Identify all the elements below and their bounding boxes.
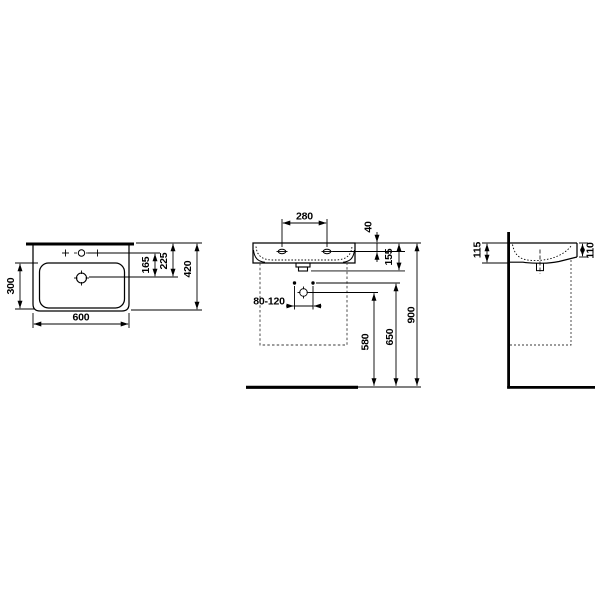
mounting-hole-right: [322, 249, 334, 253]
dim-label-225: 225: [158, 252, 170, 269]
siphon-connection-symbol: [298, 287, 310, 299]
bowl-hidden-profile-side: [513, 245, 572, 261]
wall-fixing-dot-right: [311, 281, 314, 284]
dimension-back-to-drain: 225: [89, 244, 178, 277]
dim-label-165: 165: [140, 256, 152, 273]
dim-label-110: 110: [584, 242, 596, 259]
dim-label-80-120: 80-120: [253, 296, 285, 308]
dimension-floor-to-drain: 580: [359, 293, 374, 385]
basin-body-outline: [33, 245, 129, 311]
dimension-body-height: 155: [383, 244, 399, 270]
mounting-hole-left: [277, 249, 288, 253]
dim-label-280: 280: [296, 211, 313, 223]
dim-label-900: 900: [405, 306, 417, 323]
dim-label-580: 580: [359, 333, 371, 350]
dimension-hole-spacing: 280: [282, 211, 327, 248]
dimension-height-at-wall: 115: [471, 241, 508, 263]
wall-fixing-dot-left: [293, 281, 296, 284]
shell-curve-left: [254, 250, 266, 262]
bowl-outline: [40, 263, 125, 308]
dim-label-420: 420: [182, 260, 194, 277]
side-view: 115 110: [471, 232, 596, 389]
bowl-hidden-profile: [256, 247, 352, 261]
washbasin-dimension-drawing: 300 600 165 225 420: [0, 0, 600, 600]
dimension-height-at-front: 110: [579, 242, 596, 259]
waste-outlet-pipe: [299, 267, 308, 271]
technical-drawing-canvas: 300 600 165 225 420: [0, 0, 600, 600]
alt-tap-hole-plus-left: [62, 250, 69, 257]
basin-side-underside: [509, 257, 577, 263]
dimension-width: 600: [33, 312, 129, 329]
tap-hole-symbol: [78, 250, 84, 256]
dimension-floor-to-rim: 900: [405, 244, 417, 386]
dimension-top-to-holes: 40: [362, 221, 377, 262]
dim-label-40: 40: [362, 221, 374, 233]
top-view: 300 600 165 225 420: [5, 243, 202, 328]
dim-label-155: 155: [383, 248, 395, 265]
drain-symbol: [74, 271, 89, 286]
dim-label-300: 300: [5, 277, 17, 294]
dim-label-115: 115: [471, 241, 483, 258]
dimension-fixing-range: 80-120: [253, 286, 321, 310]
front-view: 280 40 155 80-120 580: [246, 211, 421, 388]
dimension-floor-to-fixings: 650: [384, 284, 396, 386]
siphon-cover-hidden-outline-side: [509, 260, 571, 345]
dim-label-600: 600: [73, 312, 90, 324]
dim-label-650: 650: [384, 328, 396, 345]
